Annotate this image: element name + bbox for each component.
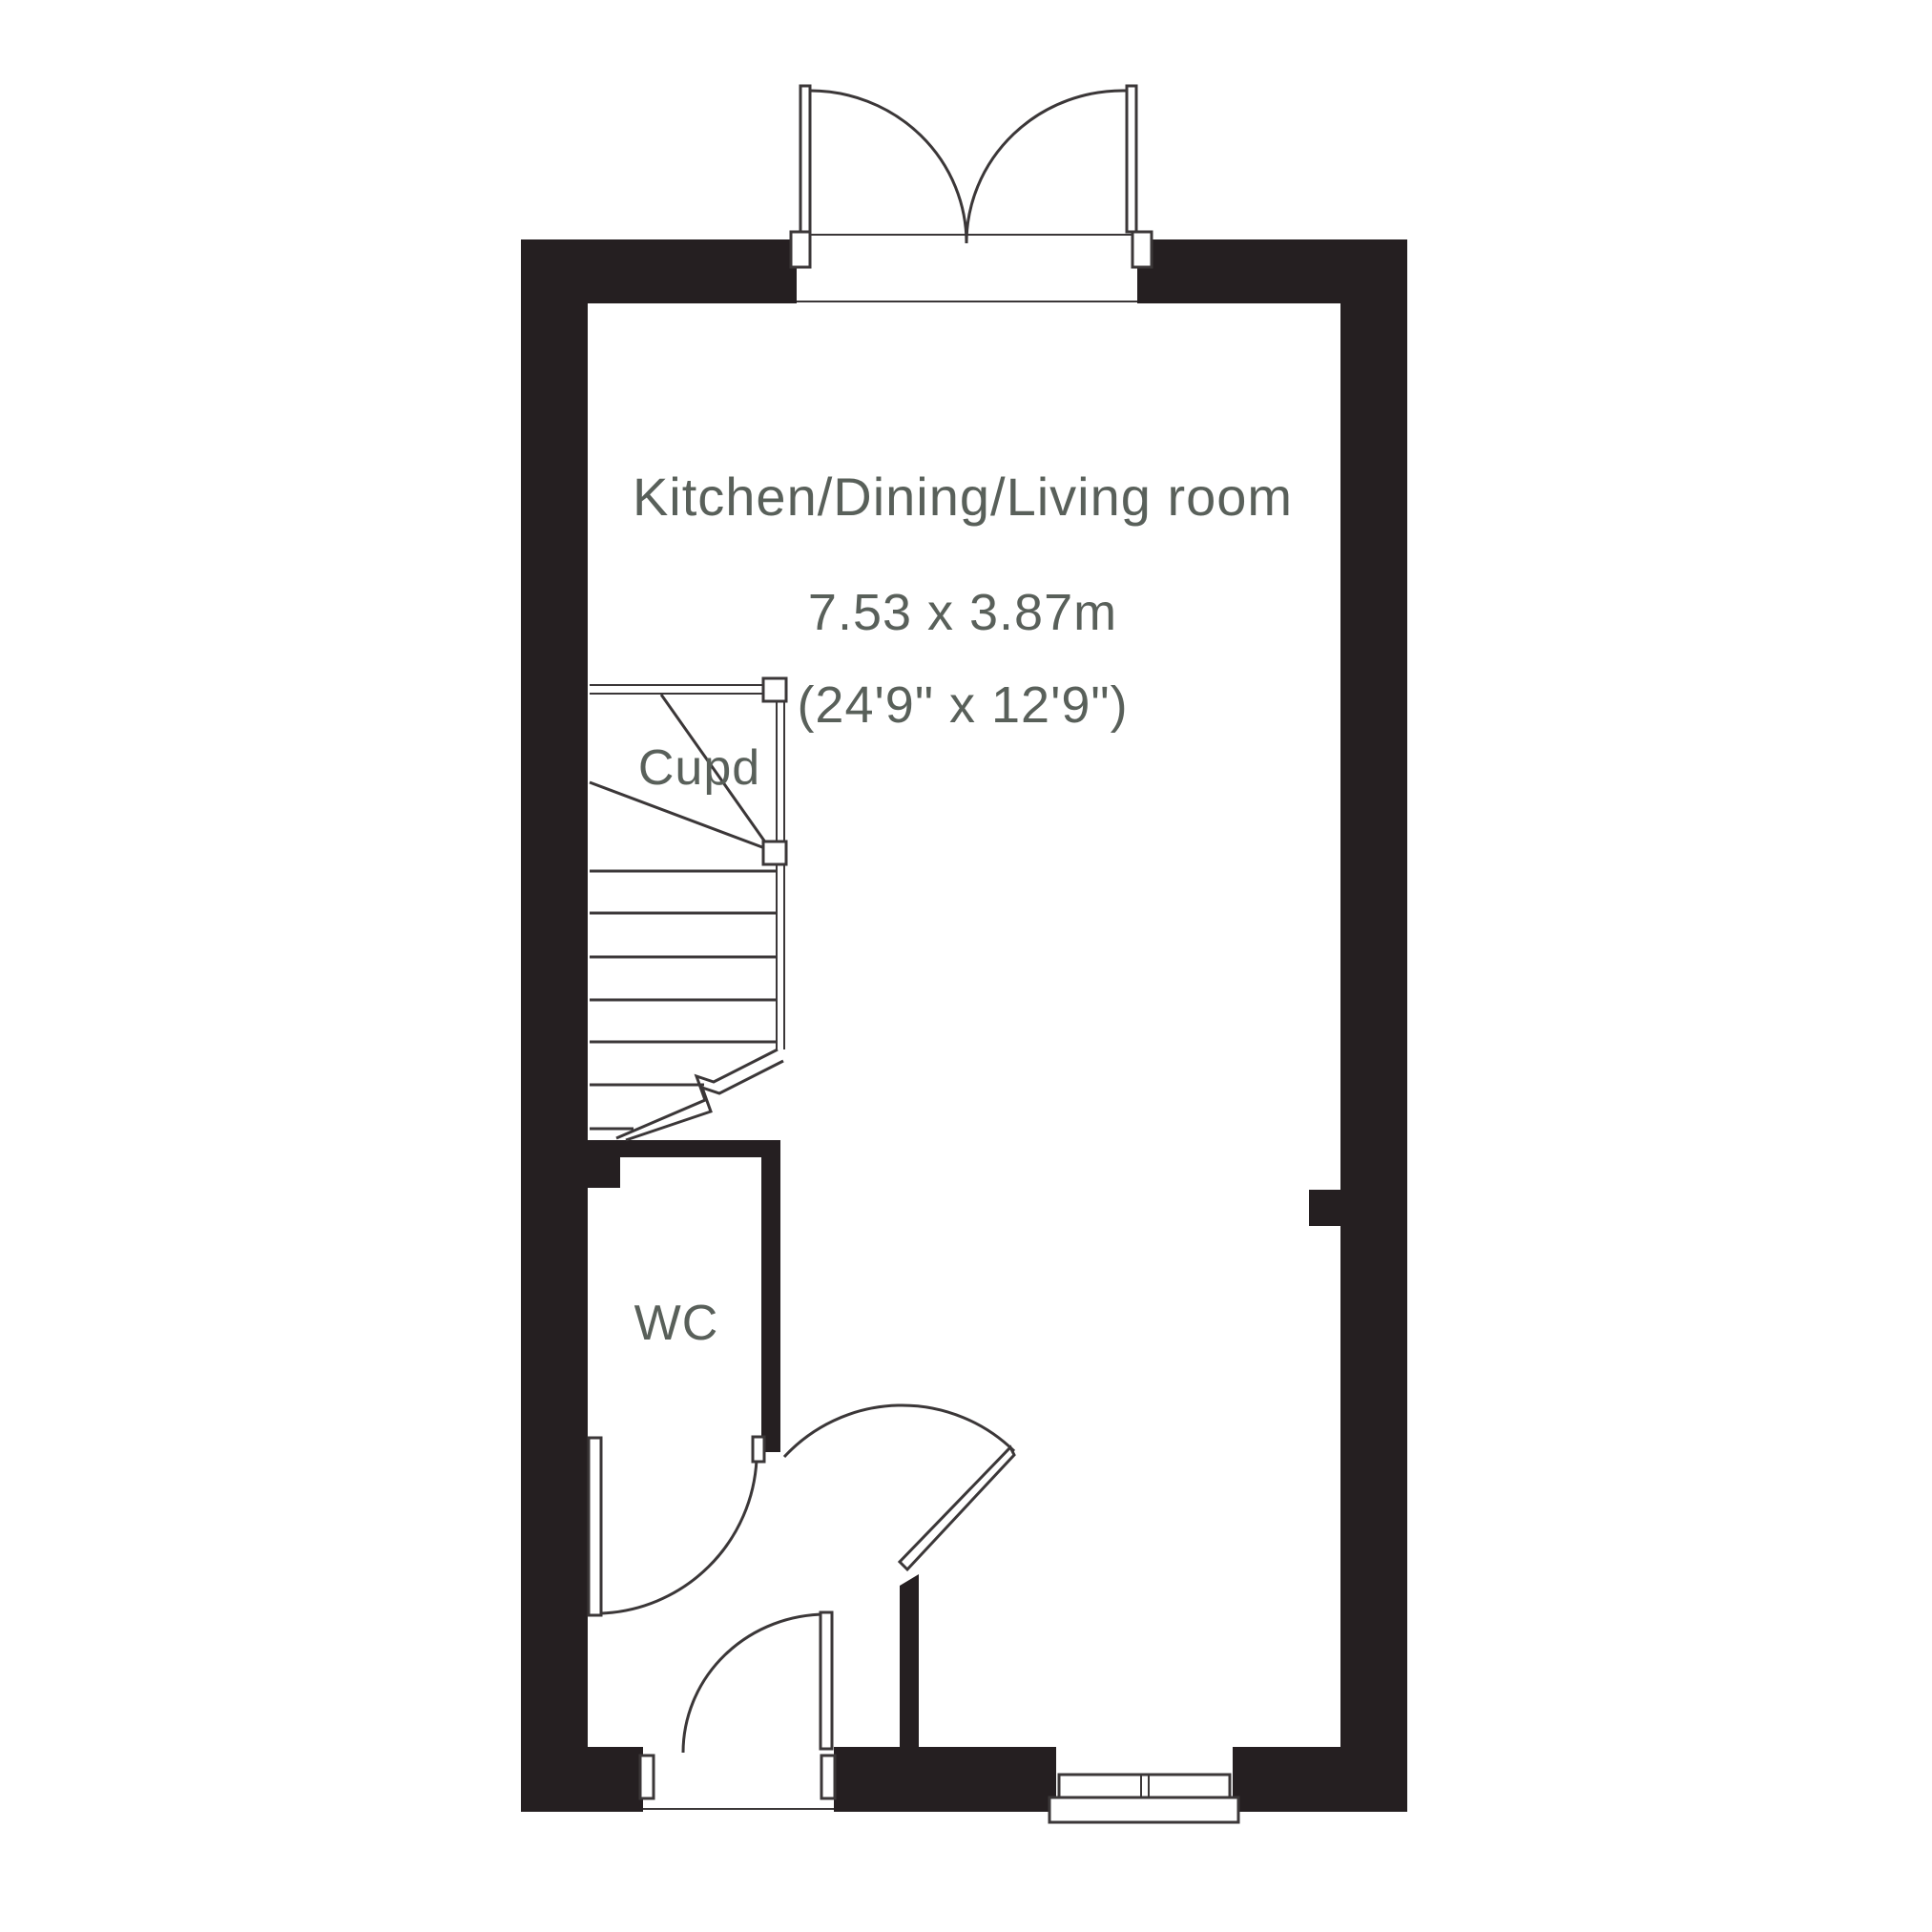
french-door-right-leaf	[1127, 86, 1136, 232]
hall-door-leaf	[900, 1447, 1014, 1569]
wc-door	[589, 1437, 764, 1615]
window	[1049, 1775, 1238, 1822]
wall-pier-stub-right	[1309, 1190, 1340, 1226]
wall-under-stairs	[588, 1140, 780, 1157]
window-glazing-frame	[1059, 1775, 1230, 1797]
front-door-right-jamb	[821, 1755, 835, 1798]
hall-door	[784, 1405, 1014, 1569]
french-door-left-swing-arc	[810, 91, 966, 243]
french-doors	[791, 86, 1152, 301]
floor-plan-drawing: Kitchen/Dining/Living room 7.53 x 3.87m …	[0, 0, 1932, 1932]
wall-under-stairs-notch	[588, 1157, 620, 1188]
stair-newel-post-bottom	[763, 841, 786, 864]
wall-hall-stub	[900, 1574, 919, 1747]
wall-top-left-segment	[521, 239, 797, 303]
front-door-left-jamb	[640, 1755, 654, 1798]
french-door-right-jamb	[1132, 232, 1152, 267]
wc-label: WC	[634, 1296, 719, 1351]
stair-break-line-upper	[616, 1049, 778, 1138]
room-size-imperial-label: (24'9" x 12'9")	[797, 676, 1128, 734]
hall-door-swing-arc	[784, 1405, 1014, 1457]
wc-door-leaf	[589, 1438, 601, 1615]
wall-bottom-left-segment	[521, 1747, 643, 1812]
room-name-label: Kitchen/Dining/Living room	[633, 467, 1293, 527]
french-door-right-swing-arc	[966, 91, 1127, 243]
wc-door-jamb	[753, 1437, 764, 1462]
wc-door-swing-arc	[601, 1460, 757, 1613]
floor-plan-page: Kitchen/Dining/Living room 7.53 x 3.87m …	[0, 0, 1932, 1932]
room-size-metric-label: 7.53 x 3.87m	[808, 584, 1117, 641]
cupboard-label: Cupd	[638, 740, 760, 796]
front-door-leaf	[821, 1612, 832, 1749]
wall-wc-right	[761, 1157, 780, 1452]
french-door-left-jamb	[791, 232, 810, 267]
french-door-left-leaf	[800, 86, 810, 232]
stair-newel-post-top	[763, 678, 786, 701]
wall-bottom-right-segment	[1233, 1747, 1407, 1812]
labels: Kitchen/Dining/Living room 7.53 x 3.87m …	[633, 467, 1293, 1351]
wall-left	[521, 239, 588, 1812]
wall-right	[1340, 239, 1407, 1812]
wall-bottom-middle-segment	[834, 1747, 1056, 1812]
front-door-swing-arc	[683, 1614, 826, 1753]
front-door	[640, 1612, 835, 1809]
window-sill	[1049, 1797, 1238, 1822]
